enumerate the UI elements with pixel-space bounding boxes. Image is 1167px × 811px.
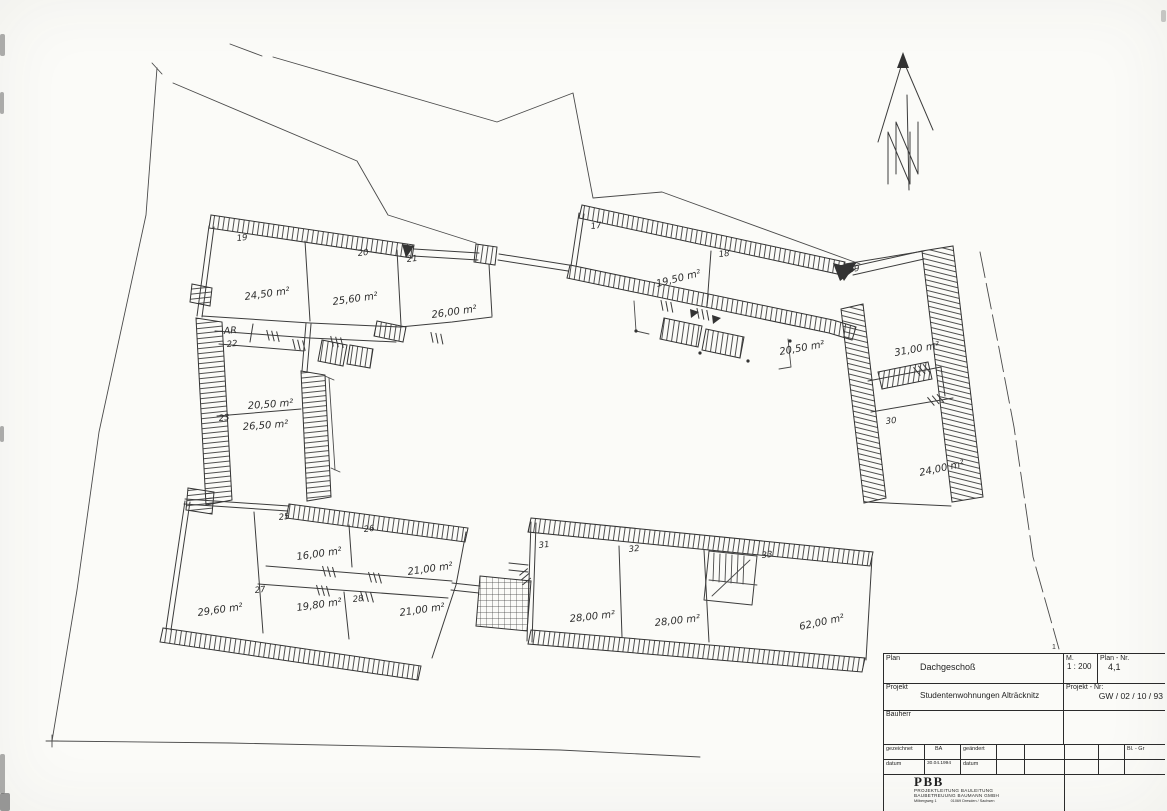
project-number-value: GW / 02 / 10 / 93: [1064, 691, 1165, 701]
room-area: 28,00 m²: [654, 613, 700, 629]
scale-value: 1 : 200: [1064, 662, 1098, 671]
changed-label-cell: geändert: [960, 744, 997, 759]
firm-address: Milbergweg 101069 Dresden / Sachsen: [914, 799, 1064, 804]
drawn-by-value: BA: [925, 744, 961, 752]
scan-smudge: [0, 426, 4, 442]
room-number: 28: [352, 594, 364, 605]
title-block-row-drawn: gezeichnet BA geändert Bl. - Gr: [884, 744, 1165, 760]
scan-smudge: [0, 92, 4, 114]
room-number: 30: [885, 416, 897, 427]
room-number: 21: [406, 254, 418, 265]
room-area: 31,00 m²: [894, 340, 941, 359]
building-bottom-middle: [509, 518, 873, 672]
title-block: 1 Plan Dachgeschoß M. 1 : 200 Plan - Nr.…: [883, 653, 1165, 811]
title-block-row-client: Bauherr: [884, 710, 1165, 745]
project-number-cell: Projekt - Nr: GW / 02 / 10 / 93: [1063, 683, 1165, 710]
room-area: 25,60 m²: [332, 291, 379, 308]
room-number: 27: [254, 585, 266, 596]
plan-number-label: Plan - Nr.: [1098, 654, 1165, 662]
building-bottom-left: [160, 499, 468, 680]
room-area: 19,80 m²: [296, 597, 343, 614]
room-number: 23: [218, 413, 230, 424]
room-area: 62,00 m²: [798, 613, 845, 633]
date-empty-cell: [996, 759, 1025, 774]
room-number: 22: [226, 339, 238, 350]
date-empty-cell: [1024, 759, 1065, 774]
date2-label: datum: [961, 759, 997, 767]
client-cell: Bauherr: [884, 710, 1063, 744]
revision-empty-cell: [1064, 744, 1099, 759]
room-area: 19,50 m²: [655, 268, 702, 290]
storage-room-label: AR: [222, 325, 237, 337]
room-area: 21,00 m²: [407, 561, 454, 578]
sheet-label: Bl. - Gr: [1125, 744, 1165, 752]
project-number-label: Projekt - Nr:: [1064, 683, 1165, 691]
scale-cell: M. 1 : 200: [1063, 654, 1098, 683]
date-value-cell: 30.04.1994: [924, 759, 961, 774]
room-area: 28,00 m²: [569, 609, 615, 625]
date-value: 30.04.1994: [925, 759, 961, 766]
building-left-wing: [186, 318, 340, 514]
scan-smudge: [0, 754, 5, 794]
firm-address-right: 01069 Dresden / Sachsen: [951, 799, 995, 803]
firm-logo: PBB PROJEKTLEITUNG BAULEITUNG BAUBETREUU…: [884, 774, 1064, 804]
fold-mark: 1: [1052, 644, 1056, 651]
firm-cell-right: [1064, 774, 1165, 811]
revision-empty-cell: [996, 744, 1025, 759]
plan-number-value: 4,1: [1098, 662, 1165, 672]
title-block-row-plan: Plan Dachgeschoß M. 1 : 200 Plan - Nr. 4…: [884, 654, 1165, 684]
room-number: 33: [761, 550, 773, 561]
room-number: 19: [236, 233, 248, 244]
room-area: 21,00 m²: [399, 602, 446, 619]
drawn-by-cell: BA: [924, 744, 961, 759]
room-number: 31: [538, 540, 550, 551]
drawn-label-cell: gezeichnet: [884, 744, 924, 759]
room-area: 29,60 m²: [197, 602, 244, 619]
date-empty-cell: [1098, 759, 1125, 774]
room-number: 32: [628, 544, 640, 555]
room-area: 26,00 m²: [431, 304, 478, 321]
client-label: Bauherr: [884, 710, 1063, 718]
room-area: 26,50 m²: [242, 419, 288, 433]
building-top-middle: [567, 205, 924, 369]
sheet-cell: Bl. - Gr: [1124, 744, 1165, 759]
changed-label: geändert: [961, 744, 997, 752]
room-number: 20: [357, 248, 369, 259]
room-area: 20,50 m²: [779, 339, 826, 358]
room-area: 24,50 m²: [244, 286, 291, 303]
project-cell: Projekt Studentenwohnungen Alträcknitz: [884, 683, 1063, 710]
title-block-row-firm: PBB PROJEKTLEITUNG BAULEITUNG BAUBETREUU…: [884, 774, 1165, 811]
firm-name: PBB: [914, 776, 1064, 788]
title-block-row-project: Projekt Studentenwohnungen Alträcknitz P…: [884, 683, 1165, 711]
courtyard-connector: [451, 576, 531, 631]
firm-address-left: Milbergweg 1: [914, 799, 937, 803]
plan-number-cell: Plan - Nr. 4,1: [1097, 654, 1165, 683]
scale-label: M.: [1064, 654, 1098, 662]
scan-smudge: [0, 34, 5, 56]
plan-label: Plan: [884, 654, 1063, 662]
room-number: 29: [848, 264, 860, 275]
plan-value: Dachgeschoß: [884, 662, 1063, 672]
date-label: datum: [884, 759, 924, 767]
firm-cell: PBB PROJEKTLEITUNG BAULEITUNG BAUBETREUU…: [884, 774, 1065, 811]
revision-empty-cell: [1098, 744, 1125, 759]
room-number: 25: [278, 512, 290, 523]
room-number: 26: [363, 524, 375, 535]
date-empty-cell: [1064, 759, 1099, 774]
client-cell-right: [1063, 710, 1165, 744]
scanned-floor-plan-page: AR 17 19,50 m² 18 20,50 m² 19 24,50 m² 2…: [0, 0, 1167, 811]
plan-cell: Plan Dachgeschoß: [884, 654, 1063, 683]
north-arrow-icon: [878, 52, 933, 190]
date2-label-cell: datum: [960, 759, 997, 774]
room-area: 16,00 m²: [296, 546, 343, 563]
project-value: Studentenwohnungen Alträcknitz: [884, 691, 1063, 700]
drawn-label: gezeichnet: [884, 744, 924, 752]
title-block-row-date: datum 30.04.1994 datum: [884, 759, 1165, 775]
room-number: 17: [590, 221, 602, 232]
scan-smudge: [0, 793, 10, 811]
room-number: 18: [718, 249, 730, 260]
project-label: Projekt: [884, 683, 1063, 691]
date-label-cell: datum: [884, 759, 924, 774]
scan-smudge: [1161, 10, 1166, 22]
revision-empty-cell: [1024, 744, 1065, 759]
date-empty-cell: [1124, 759, 1165, 774]
site-boundary: [46, 44, 1059, 757]
